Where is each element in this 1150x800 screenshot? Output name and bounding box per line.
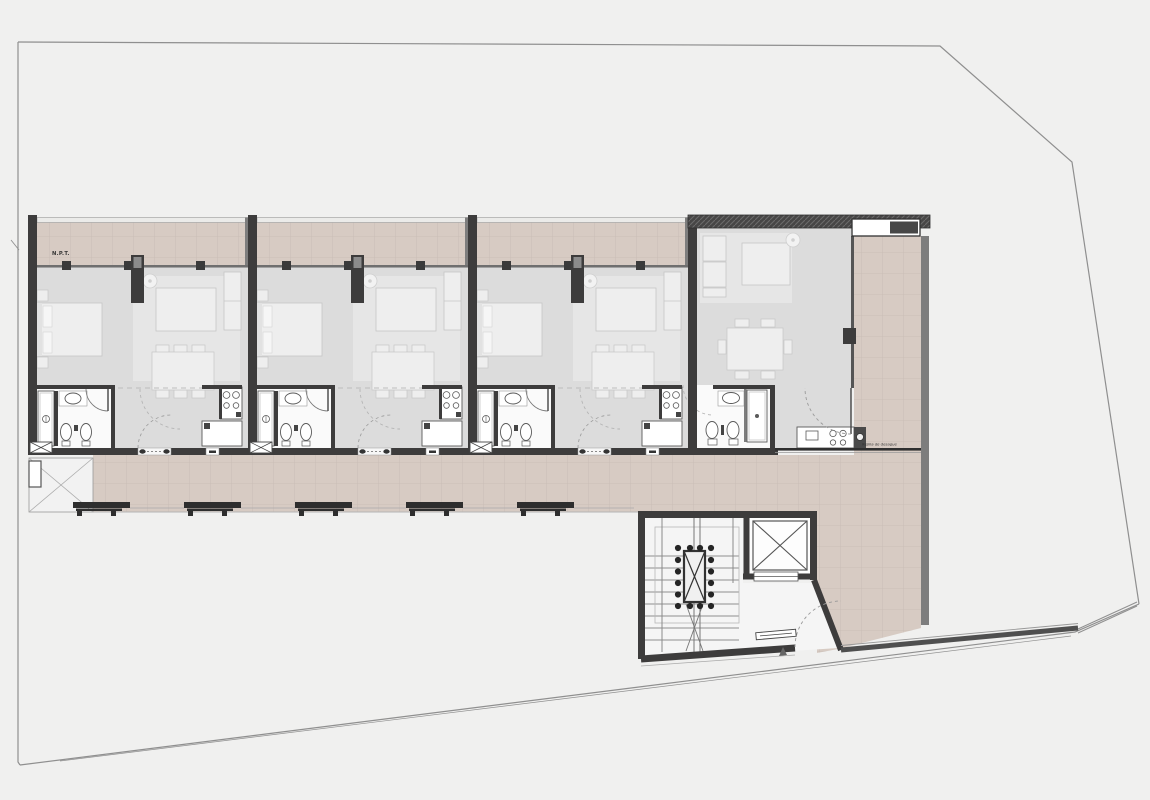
baluster-dot bbox=[675, 545, 681, 551]
bench bbox=[184, 502, 241, 508]
structural-column bbox=[843, 328, 856, 344]
elevator bbox=[743, 511, 817, 581]
apartment-unit-2 bbox=[248, 215, 468, 455]
terrace-glazing bbox=[851, 236, 854, 388]
stair-core bbox=[638, 511, 841, 666]
facade-wall bbox=[688, 448, 778, 455]
kitchen-sink bbox=[806, 431, 818, 440]
baluster-dot bbox=[675, 591, 681, 597]
floor-plan-page: N.P.T. bbox=[0, 0, 1150, 800]
floor-plan-drawing: N.P.T. bbox=[0, 0, 1150, 800]
apartment-unit-3 bbox=[468, 215, 688, 455]
private-terrace-tiles bbox=[854, 236, 921, 455]
dining-set bbox=[718, 319, 792, 379]
terrace-side-wall bbox=[921, 236, 929, 625]
stair-well bbox=[684, 551, 705, 602]
bench bbox=[406, 502, 463, 508]
patio-pillar bbox=[29, 461, 41, 487]
party-wall bbox=[688, 215, 697, 455]
shower-drain-icon bbox=[755, 414, 759, 418]
toilet bbox=[706, 422, 718, 439]
baluster-dot bbox=[687, 545, 693, 551]
sofa bbox=[703, 236, 726, 297]
baluster-dot bbox=[687, 603, 693, 609]
sink bbox=[723, 393, 740, 404]
bench bbox=[295, 502, 352, 508]
baluster-dot bbox=[708, 603, 714, 609]
baluster-dot bbox=[697, 603, 703, 609]
baluster-dot bbox=[675, 580, 681, 586]
bench bbox=[517, 502, 574, 508]
baluster-dot bbox=[675, 603, 681, 609]
baluster-dot bbox=[708, 580, 714, 586]
bench bbox=[73, 502, 130, 508]
linear-drain bbox=[775, 448, 921, 451]
floor-level-label: N.P.T. bbox=[52, 251, 70, 257]
baluster-dot bbox=[675, 568, 681, 574]
baluster-dot bbox=[708, 545, 714, 551]
baluster-dot bbox=[697, 545, 703, 551]
coffee-table bbox=[742, 243, 790, 285]
drain-label: Rejilla de desague bbox=[862, 442, 898, 447]
bidet bbox=[727, 422, 739, 439]
baluster-dot bbox=[708, 557, 714, 563]
baluster-dot bbox=[675, 557, 681, 563]
baluster-dot bbox=[708, 591, 714, 597]
kitchen-counter bbox=[797, 427, 854, 448]
baluster-dot bbox=[708, 568, 714, 574]
